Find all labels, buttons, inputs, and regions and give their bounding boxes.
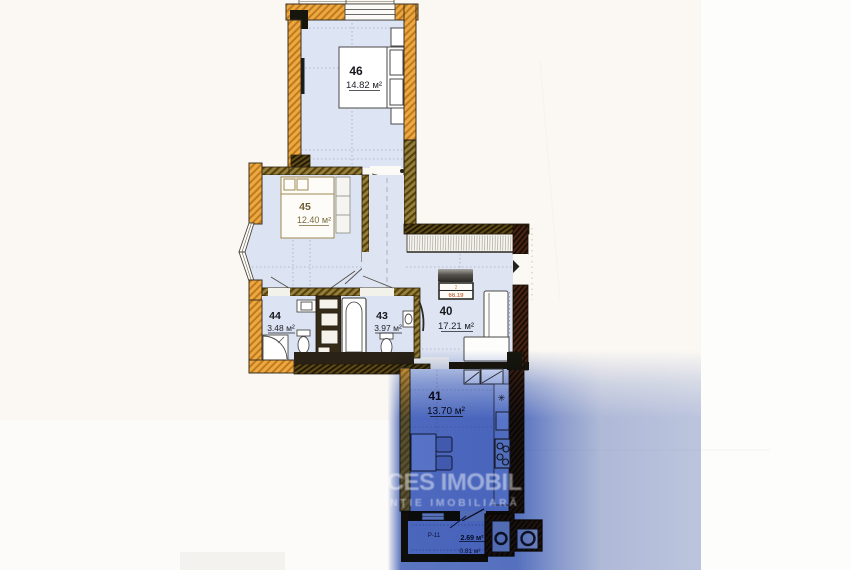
svg-text:2: 2 — [455, 285, 458, 291]
svg-text:45: 45 — [299, 201, 311, 213]
svg-text:46: 46 — [349, 64, 363, 78]
svg-text:40: 40 — [440, 306, 453, 318]
svg-text:3.48 м²: 3.48 м² — [267, 323, 295, 333]
svg-text:12.40 м²: 12.40 м² — [297, 215, 331, 225]
svg-text:43: 43 — [376, 310, 388, 322]
svg-text:3.97 м²: 3.97 м² — [374, 323, 402, 333]
svg-text:66.19: 66.19 — [448, 293, 464, 299]
svg-text:17.21 м²: 17.21 м² — [438, 321, 474, 332]
svg-text:14.82 м²: 14.82 м² — [346, 80, 382, 91]
svg-text:44: 44 — [269, 310, 281, 322]
